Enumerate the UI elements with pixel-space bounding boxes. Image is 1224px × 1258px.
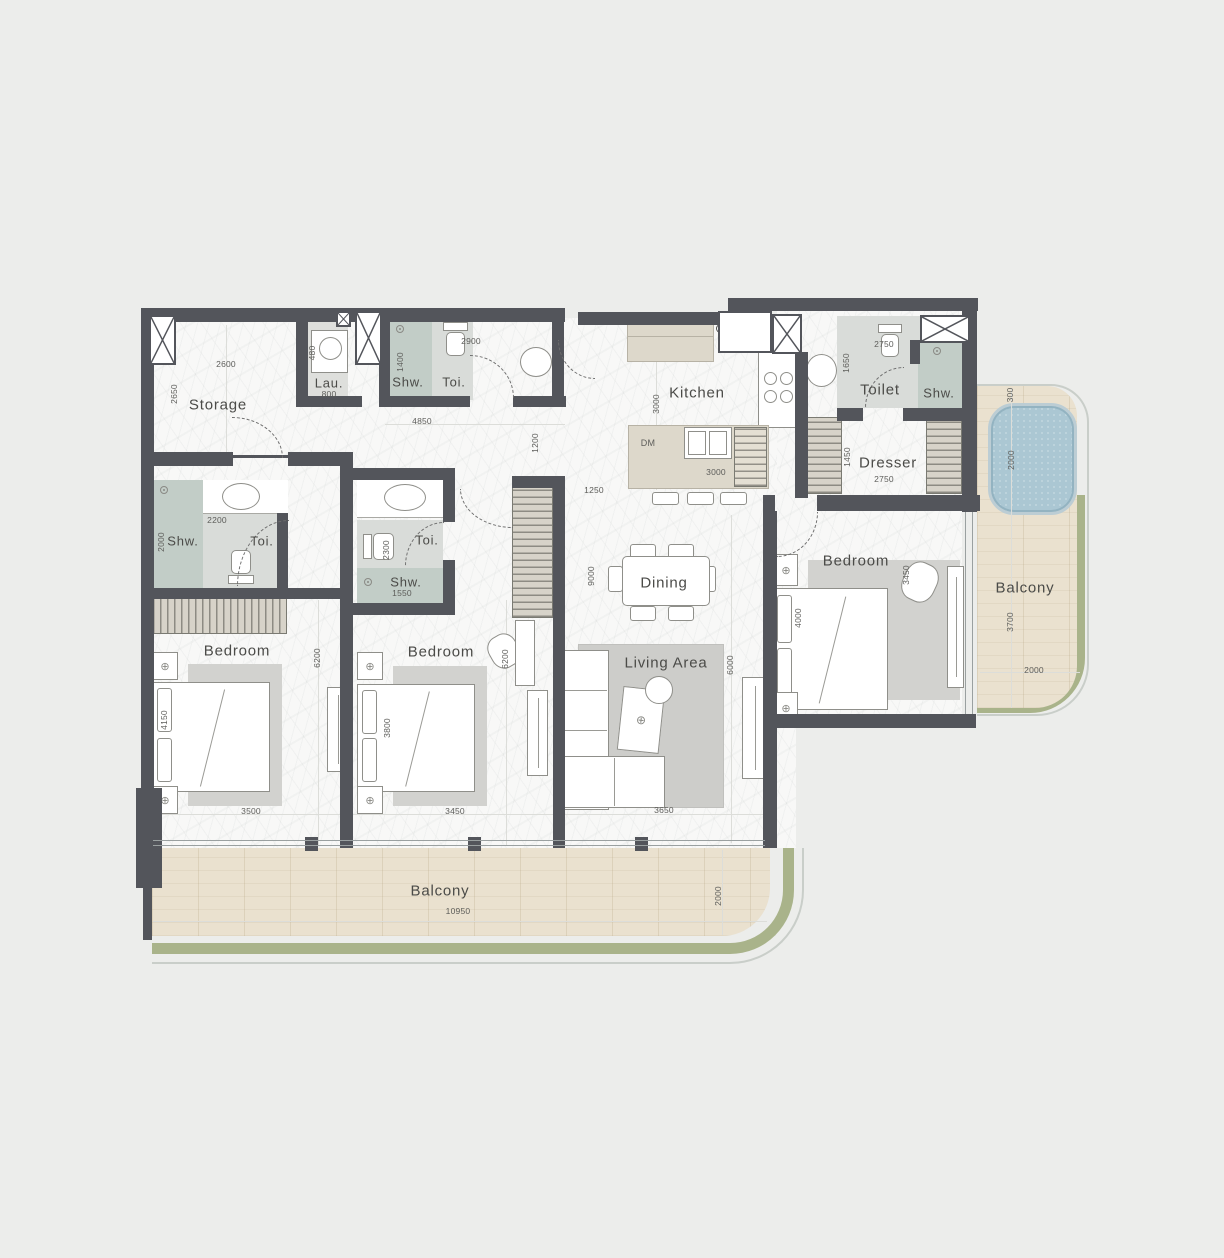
wall [443,478,455,522]
wall [136,788,162,888]
guide-line [1011,388,1012,708]
island-sink-basin [709,431,727,455]
room-label-bedroom1: Bedroom [204,643,270,660]
wardrobe-dresser-left [806,417,842,494]
wall [763,511,777,848]
shaft-icon [336,311,351,327]
bed-pillow [777,648,792,696]
burner-icon [780,372,793,385]
shaft-x-icon [151,317,174,363]
guide-line [153,921,767,922]
dim-balcony-right-gap: 300 [1005,388,1015,403]
dim-bedroom1-h: 6200 [312,648,322,668]
dim-laundry-side: 480 [307,346,317,361]
wall [340,468,455,480]
sofa-chaise-icon [561,756,665,808]
shower-head-icon [364,578,372,586]
tv-console [947,566,964,688]
dim-living-w: 3650 [654,805,674,815]
dim-bath-left-h: 2000 [156,532,166,552]
wall [903,408,977,421]
room-label-bedroom3: Bedroom [823,553,889,570]
shaft-x-icon [338,313,349,325]
room-label-bath-top-toi: Toi. [442,375,465,390]
dim-bath-top-h: 1400 [395,352,405,372]
burner-icon [780,390,793,403]
wall [141,452,233,466]
tv-console [527,690,548,776]
bed-pillow [157,738,172,782]
basin-icon [806,354,837,387]
basin-icon [384,484,426,511]
dim-bedroom3-bed: 4000 [793,608,803,628]
room-label-dining: Dining [640,575,687,592]
toilet-fixture-icon [363,534,372,559]
shaft-x-icon [357,313,380,363]
dim-pool: 2000 [1006,450,1016,470]
shaft-icon [355,311,382,365]
room-label-storage: Storage [189,397,247,414]
dim-bath-mid-w: 1550 [392,588,412,598]
dim-hall-depth: 9000 [586,566,596,586]
wall [910,340,920,364]
dim-toilet-h: 1650 [841,353,851,373]
island-vent-hatch [734,427,767,487]
wardrobe-bedroom1 [152,598,287,634]
wall [553,476,565,848]
room-label-living: Living Area [624,655,707,672]
shower-head-icon [396,325,404,333]
dim-balcony-bottom-h: 2000 [713,886,723,906]
wall [141,588,341,599]
room-label-kitchen: Kitchen [669,385,725,402]
room-label-toilet-shw: Shw. [923,386,954,401]
wall [763,495,775,511]
burner-icon [764,390,777,403]
island-stool [720,492,747,505]
shaft-icon [772,314,802,354]
room-label-balcony-bottom: Balcony [411,883,470,900]
dim-toilet-w: 2750 [874,339,894,349]
wall [817,495,980,511]
shaft-x-icon [922,317,968,341]
room-label-bath-left-toi: Toi. [250,534,273,549]
wall [340,452,353,848]
dining-chair [608,566,623,592]
room-label-bath-mid-toi: Toi. [415,533,438,548]
window-glass [153,840,765,846]
wall [141,308,154,848]
burner-icon [764,372,777,385]
dim-storage-w: 2600 [216,359,236,369]
dim-dresser-h: 1450 [842,447,852,467]
sofa-cushion-line [563,690,607,691]
room-label-dresser: Dresser [859,455,917,472]
cooktop-counter [758,352,798,428]
dim-bedroom1-bed: 4150 [159,710,169,730]
dim-foyer-w: 4850 [412,416,432,426]
toilet-fixture-icon [878,324,902,333]
dim-foyer-h: 1200 [530,433,540,453]
nightstand [152,652,178,680]
dim-bedroom2-bed: 3800 [382,718,392,738]
pool [988,403,1077,515]
toilet-fixture-icon [443,322,468,331]
basin-icon [520,347,552,377]
shaft-icon [149,315,176,365]
dim-bedroom3-side: 3450 [901,565,911,585]
island-sink-basin [688,431,706,455]
nightstand [357,652,383,680]
guide-line [318,600,319,845]
shower-head-icon [160,486,168,494]
room-label-bedroom2: Bedroom [408,644,474,661]
floor-plan: Storage Lau. Shw. Toi. Kitchen Toilet Sh… [0,0,1224,1258]
washer-drum-icon [319,337,342,360]
room-label-bath-left-shw: Shw. [167,534,198,549]
kitchen-counter-line [628,336,713,337]
bed-pillow [362,738,377,782]
wardrobe-dresser-right [926,417,962,494]
toilet-shower-floor [918,343,963,411]
wall [777,714,976,728]
room-label-toilet: Toilet [860,382,900,399]
wall [340,603,455,615]
dim-balcony-bottom-w: 10950 [446,906,471,916]
sofa-cushion-line [614,758,615,806]
shaft-x-icon [774,316,800,352]
guide-line [226,325,227,455]
shower-head-icon [933,347,941,355]
island-stool [687,492,714,505]
shaft-icon [920,315,970,343]
dim-kitchen-island: 3000 [706,467,726,477]
dining-chair [630,606,656,621]
dim-bedroom2-w: 3450 [445,806,465,816]
bed-pillow [362,690,377,734]
wall [143,888,152,940]
room-label-balcony-right: Balcony [996,580,1055,597]
sofa-cushion-line [563,730,607,731]
dim-balcony-right-w: 2000 [1024,665,1044,675]
basin-icon [222,483,260,510]
wall [795,352,808,498]
label-dishwasher: DM [641,438,655,448]
nightstand [774,554,798,586]
wall [837,408,863,421]
dim-storage-h: 2650 [169,384,179,404]
wall [141,308,565,322]
island-stool [652,492,679,505]
wall [379,396,470,407]
wardrobe-corridor [512,484,553,618]
dim-balcony-right-h: 3700 [1005,612,1015,632]
window-glass [965,512,973,714]
wall [728,298,978,311]
nightstand [357,786,383,814]
dim-bedroom1-w: 3500 [241,806,261,816]
wall [512,476,565,488]
guide-line [731,515,732,843]
wall [578,312,728,325]
room-label-bath-top-shw: Shw. [392,375,423,390]
dim-bath-left-w: 2200 [207,515,227,525]
dining-chair [668,606,694,621]
dim-kitchen-depth: 3000 [651,394,661,414]
utility-alcove [718,311,772,353]
dim-bedroom2-h: 6200 [500,649,510,669]
dim-kitchen-entry: 1250 [584,485,604,495]
bed-pillow [777,595,792,643]
dim-bath-top-w: 2900 [461,336,481,346]
side-table [645,676,673,704]
dim-bath-mid-h: 2300 [381,540,391,560]
dim-living-h: 6000 [725,655,735,675]
dim-laundry: 800 [322,389,337,399]
wardrobe-panel [515,620,535,686]
dim-dresser-w: 2750 [874,474,894,484]
